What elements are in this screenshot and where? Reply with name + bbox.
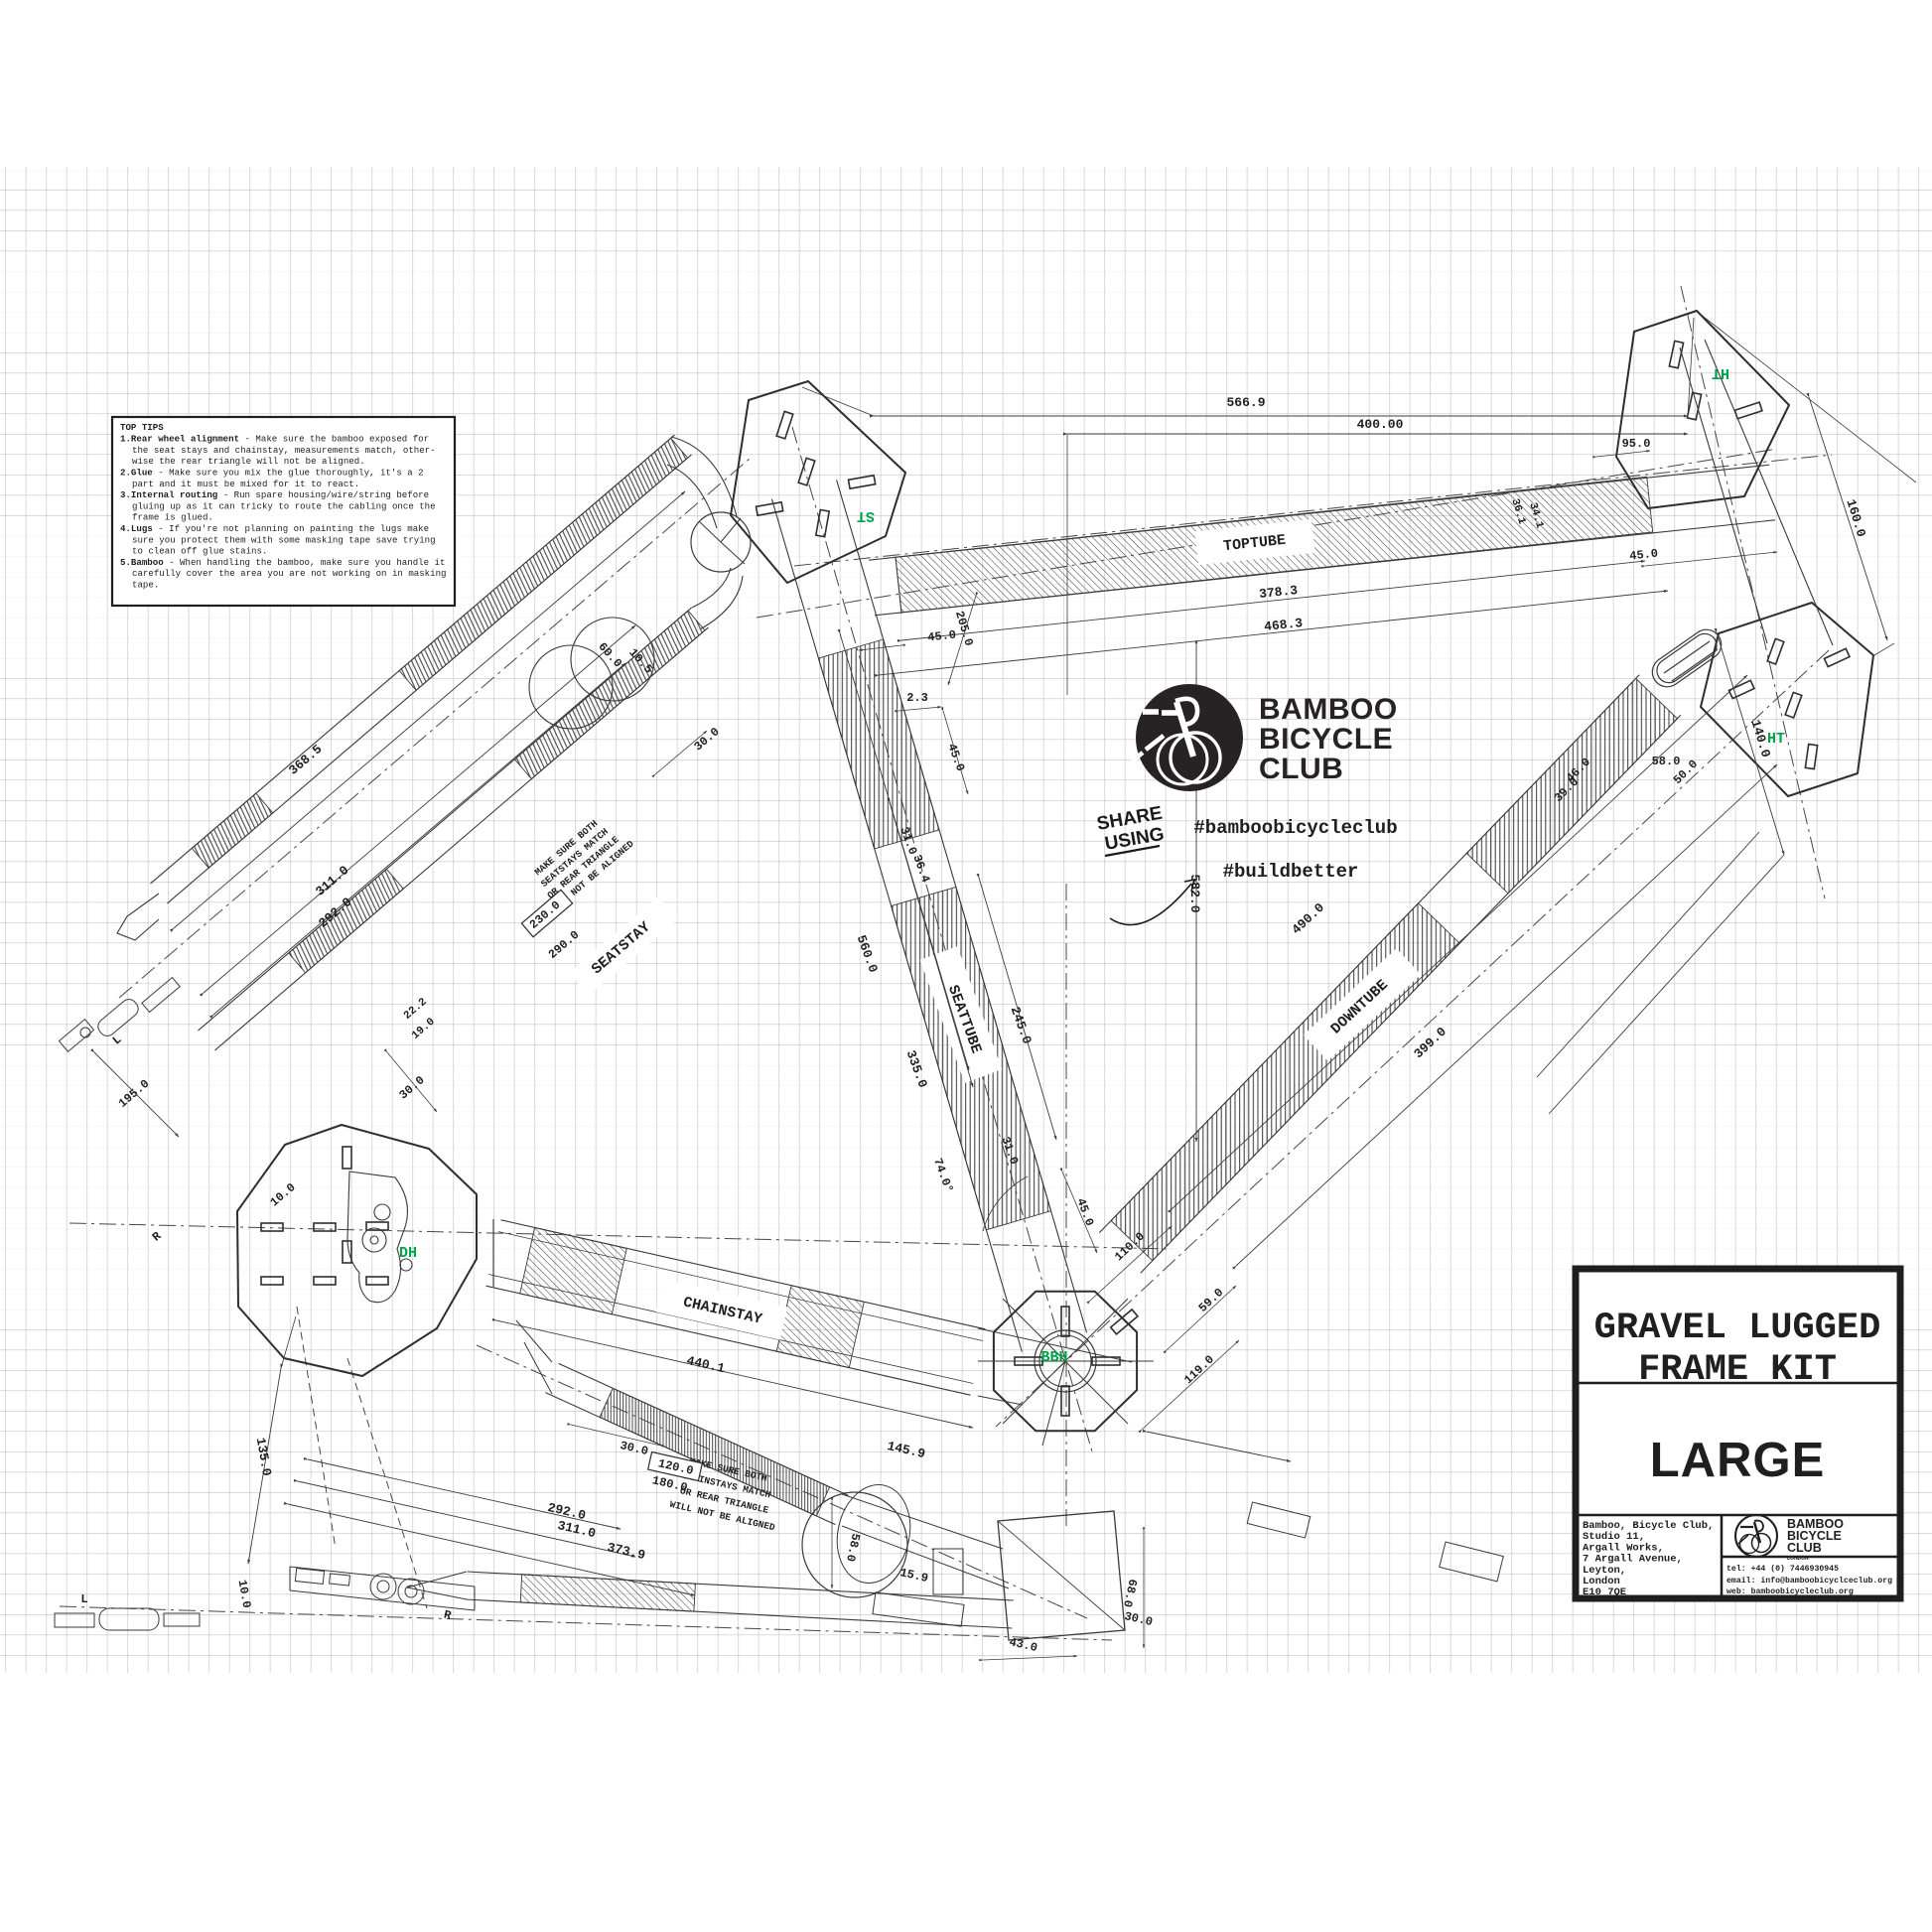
svg-text:LONDON: LONDON [1787,1556,1809,1562]
svg-text:tel: +44 (0) 7446930945: tel: +44 (0) 7446930945 [1726,1564,1839,1574]
svg-text:58.0: 58.0 [1652,755,1681,768]
svg-text:gluing up as it can tricky to: gluing up as it can tricky to route the … [132,500,436,511]
svg-text:sure you protect them with som: sure you protect them with some masking … [132,534,436,545]
svg-text:ST: ST [857,507,875,524]
svg-text:L: L [80,1592,87,1606]
svg-text:5.Bamboo - When handling the b: 5.Bamboo - When handling the bamboo, mak… [120,557,445,568]
svg-text:2.3: 2.3 [906,691,928,705]
svg-text:Bamboo, Bicycle Club,: Bamboo, Bicycle Club, [1583,1520,1714,1532]
svg-text:tape.: tape. [132,580,159,591]
svg-text:400.00: 400.00 [1357,417,1404,432]
svg-text:2.Glue - Make sure you mix the: 2.Glue - Make sure you mix the glue thor… [120,468,424,479]
svg-text:#bamboobicycleclub: #bamboobicycleclub [1193,817,1397,839]
svg-text:TOP TIPS: TOP TIPS [120,422,164,433]
svg-text:E10 7QE: E10 7QE [1583,1587,1626,1598]
svg-text:Argall Works,: Argall Works, [1583,1542,1664,1554]
svg-text:BAMBOO: BAMBOO [1259,693,1398,726]
svg-text:DH: DH [399,1245,417,1262]
svg-text:3.Internal routing - Run spare: 3.Internal routing - Run spare housing/w… [120,489,429,500]
svg-text:95.0: 95.0 [1622,437,1651,451]
svg-text:email: info@bamboobicyclceclub: email: info@bamboobicyclceclub.org [1726,1576,1892,1586]
svg-text:to clean off glue stains.: to clean off glue stains. [132,546,267,557]
svg-text:45.0: 45.0 [927,628,957,645]
svg-text:1.Rear wheel alignment - Make: 1.Rear wheel alignment - Make sure the b… [120,434,429,445]
svg-text:4.Lugs - If you're not plannin: 4.Lugs - If you're not planning on paint… [120,523,429,534]
svg-text:CLUB: CLUB [1787,1541,1822,1555]
svg-text:carefully cover the area you a: carefully cover the area you are not wor… [132,568,447,579]
svg-text:#buildbetter: #buildbetter [1223,861,1359,883]
svg-text:CLUB: CLUB [1259,753,1343,785]
svg-text:LARGE: LARGE [1650,1434,1826,1487]
svg-text:the seat stays and chainstay,: the seat stays and chainstay, measuremen… [132,445,436,456]
svg-text:wise the rear triangle will no: wise the rear triangle will not be align… [132,456,365,467]
svg-text:45.0: 45.0 [1629,547,1659,564]
svg-text:7 Argall Avenue,: 7 Argall Avenue, [1583,1554,1683,1566]
svg-text:web: bamboobicycleclub.org: web: bamboobicycleclub.org [1726,1587,1854,1596]
svg-text:London: London [1583,1576,1620,1587]
svg-text:BBH: BBH [1040,1349,1067,1366]
svg-text:Studio 11,: Studio 11, [1583,1531,1645,1543]
svg-text:GRAVEL LUGGED: GRAVEL LUGGED [1594,1308,1881,1349]
svg-text:FRAME KIT: FRAME KIT [1638,1349,1837,1391]
svg-text:BICYCLE: BICYCLE [1259,723,1393,756]
svg-text:566.9: 566.9 [1226,395,1265,410]
svg-text:frame is glued.: frame is glued. [132,512,213,523]
svg-text:part and it must be mixed for: part and it must be mixed for it to reac… [132,479,359,489]
svg-text:Leyton,: Leyton, [1583,1565,1626,1577]
